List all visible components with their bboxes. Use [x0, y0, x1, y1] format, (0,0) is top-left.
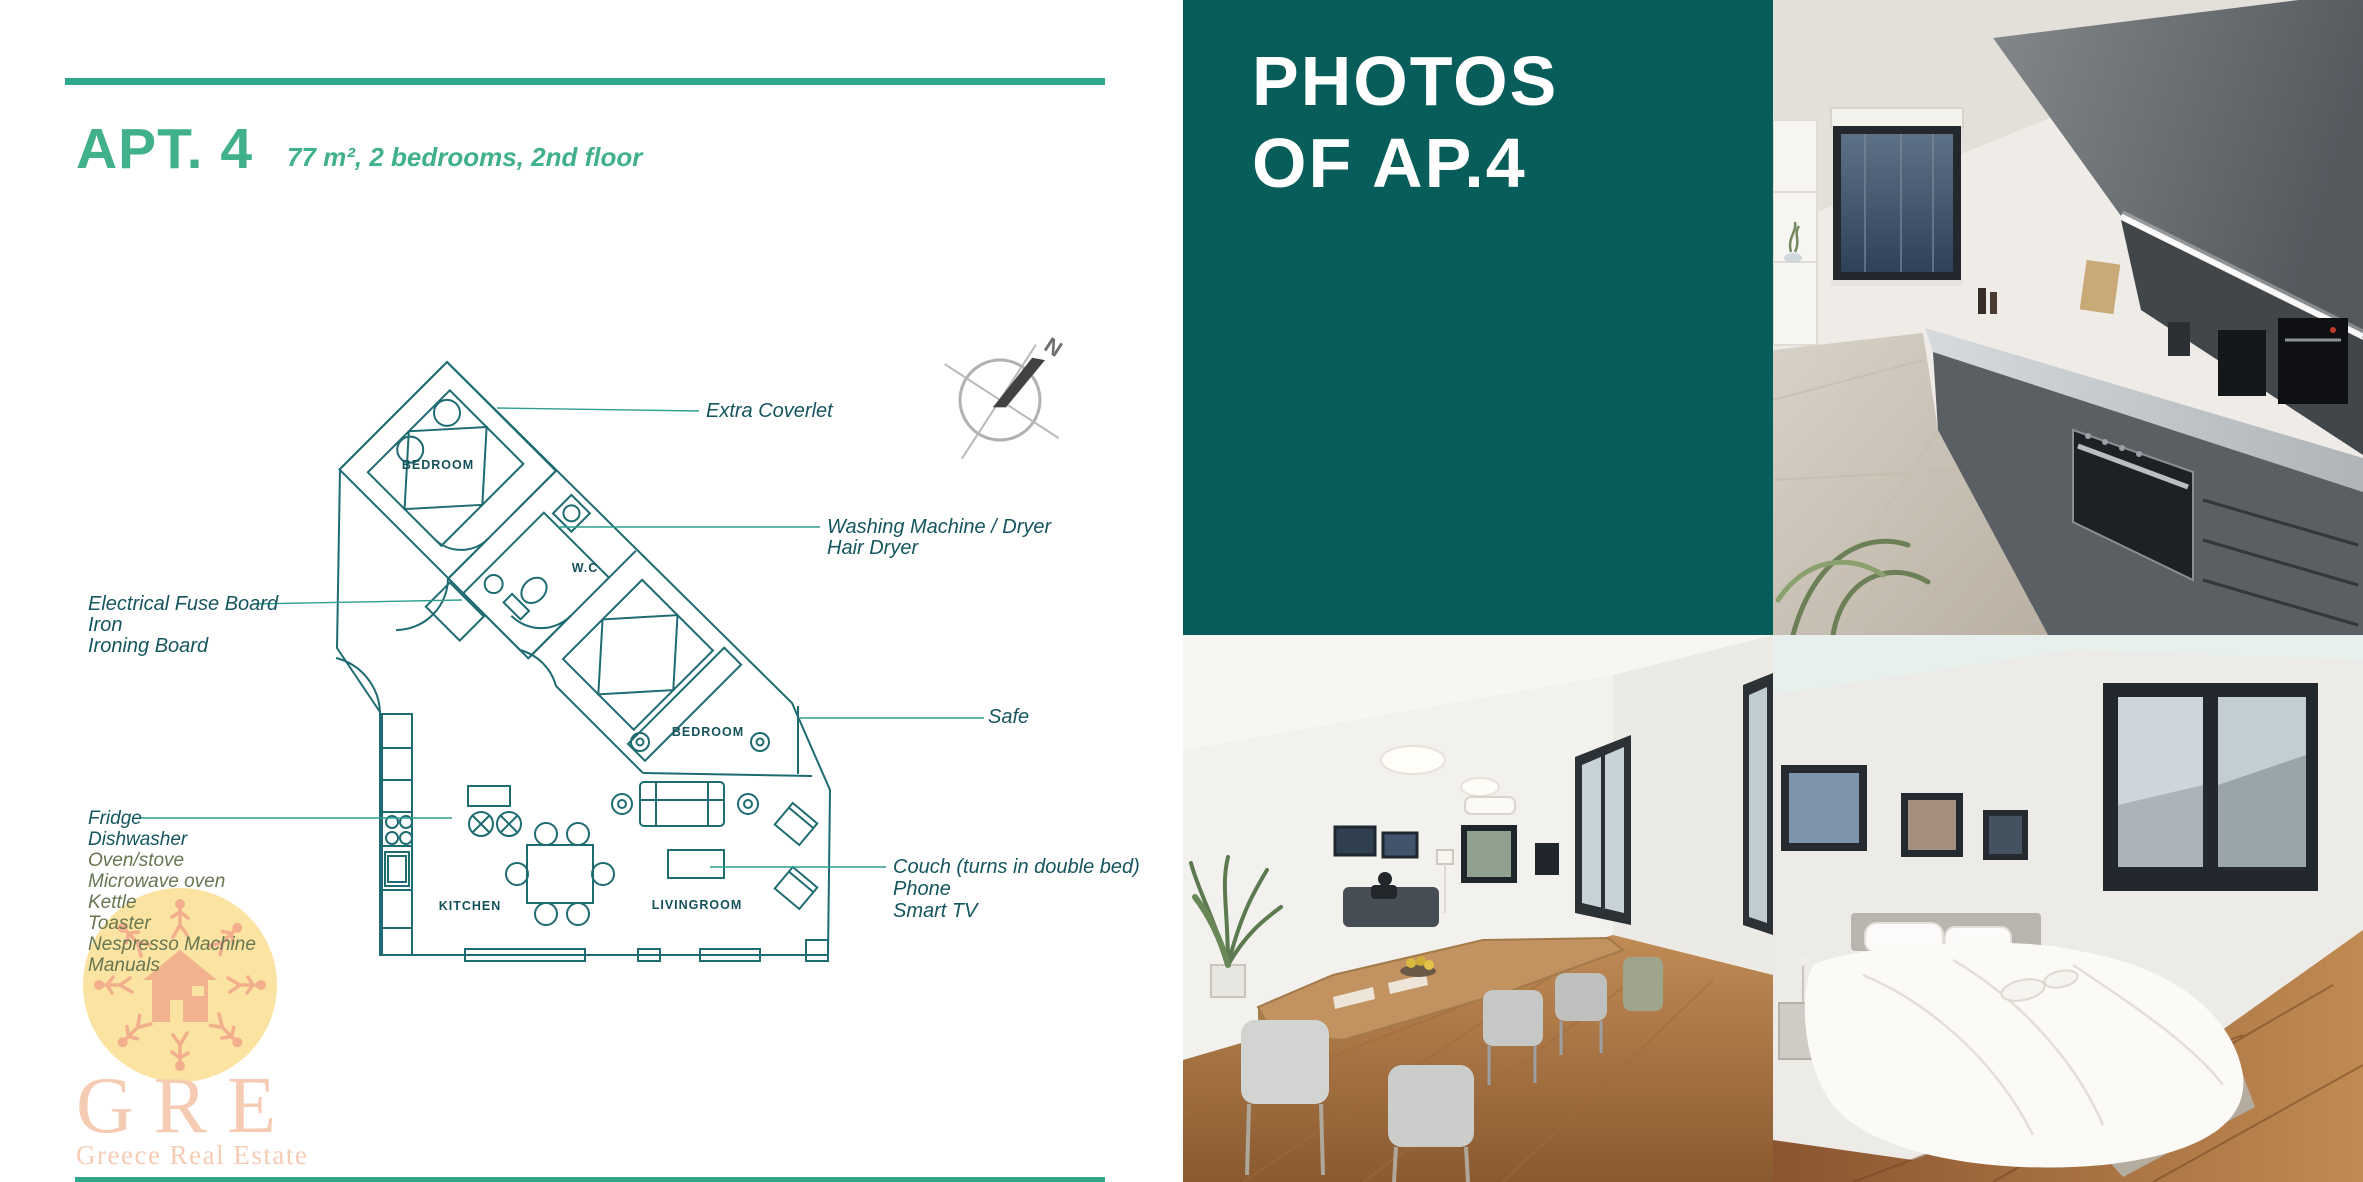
floor-plan: GRE Greece Real Estate	[0, 0, 1183, 1182]
kitchen-window	[1831, 108, 1963, 286]
photos-title: PHOTOS OF AP.4	[1252, 40, 1558, 204]
annotation-safe: Safe	[988, 707, 1029, 728]
photo-bedroom	[1773, 635, 2363, 1182]
annotation-kitchen-item-manuals: Manuals	[88, 955, 160, 976]
kitchen-shelf-niche	[1773, 120, 1817, 345]
photos-panel: PHOTOS OF AP.4	[1183, 0, 1773, 635]
annotation-washing-line1: Washing Machine / Dryer	[827, 517, 1051, 538]
brochure-page: APT. 4 77 m², 2 bedrooms, 2nd floor	[0, 0, 2363, 1182]
room-label-bedroom2: BEDROOM	[672, 725, 744, 739]
annotation-kitchen-item-oven: Oven/stove	[88, 850, 184, 871]
logo-name: Greece Real Estate	[76, 1140, 308, 1170]
room-label-wc: W.C	[572, 561, 599, 575]
annotation-fuse-line3: Ironing Board	[88, 636, 208, 657]
annotation-extra-coverlet: Extra Coverlet	[706, 401, 833, 422]
photo-living-room	[1183, 635, 1773, 1182]
bedroom-window	[2103, 683, 2318, 891]
annotation-fuse-line2: Iron	[88, 615, 122, 636]
annotation-kitchen-item-nespresso: Nespresso Machine	[88, 934, 256, 955]
compass-north-label: N	[1040, 332, 1067, 362]
annotation-kitchen-item-kettle: Kettle	[88, 892, 137, 913]
annotation-fuse-line1: Electrical Fuse Board	[88, 594, 278, 615]
photos-title-line1: PHOTOS	[1252, 40, 1558, 122]
annotation-couch-line3: Smart TV	[893, 901, 977, 922]
annotation-couch-line2: Phone	[893, 879, 951, 900]
room-label-livingroom: LIVINGROOM	[652, 898, 743, 912]
logo-acronym: GRE	[76, 1062, 296, 1150]
annotation-washing-line2: Hair Dryer	[827, 538, 918, 559]
annotation-kitchen-item-fridge: Fridge	[88, 808, 142, 829]
annotation-kitchen-item-microwave: Microwave oven	[88, 871, 225, 892]
room-label-bedroom1: BEDROOM	[402, 458, 474, 472]
photo-kitchen	[1773, 0, 2363, 635]
compass-icon: N	[907, 292, 1106, 497]
annotation-couch-line1: Couch (turns in double bed)	[893, 857, 1140, 878]
annotation-kitchen-item-dishwasher: Dishwasher	[88, 829, 187, 850]
annotation-kitchen-item-toaster: Toaster	[88, 913, 151, 934]
photos-title-line2: OF AP.4	[1252, 122, 1558, 204]
floor-plan-walls	[314, 362, 830, 961]
room-label-kitchen: KITCHEN	[439, 899, 502, 913]
